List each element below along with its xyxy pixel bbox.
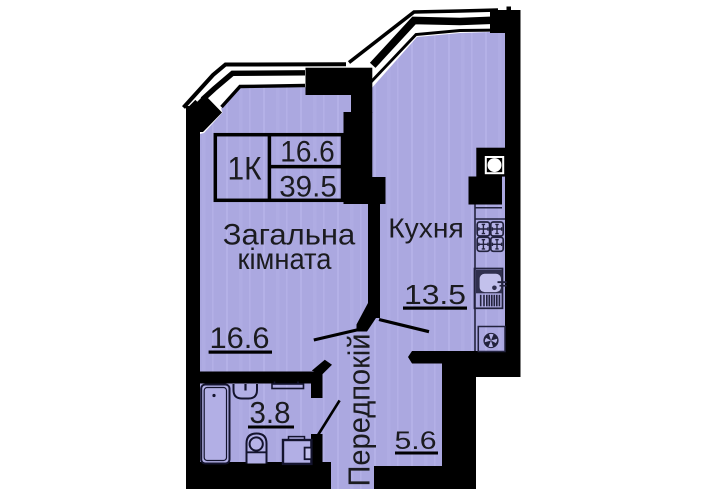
svg-text:16.6: 16.6 <box>280 136 335 169</box>
svg-text:3.8: 3.8 <box>250 395 291 430</box>
svg-text:13.5: 13.5 <box>404 279 466 310</box>
svg-text:Передпокій: Передпокій <box>342 334 377 487</box>
svg-text:5.6: 5.6 <box>395 427 437 455</box>
svg-text:39.5: 39.5 <box>279 170 337 203</box>
svg-text:Кухня: Кухня <box>388 213 464 244</box>
svg-text:1К: 1К <box>228 150 262 186</box>
svg-text:кімната: кімната <box>238 243 332 276</box>
svg-text:16.6: 16.6 <box>210 322 270 355</box>
